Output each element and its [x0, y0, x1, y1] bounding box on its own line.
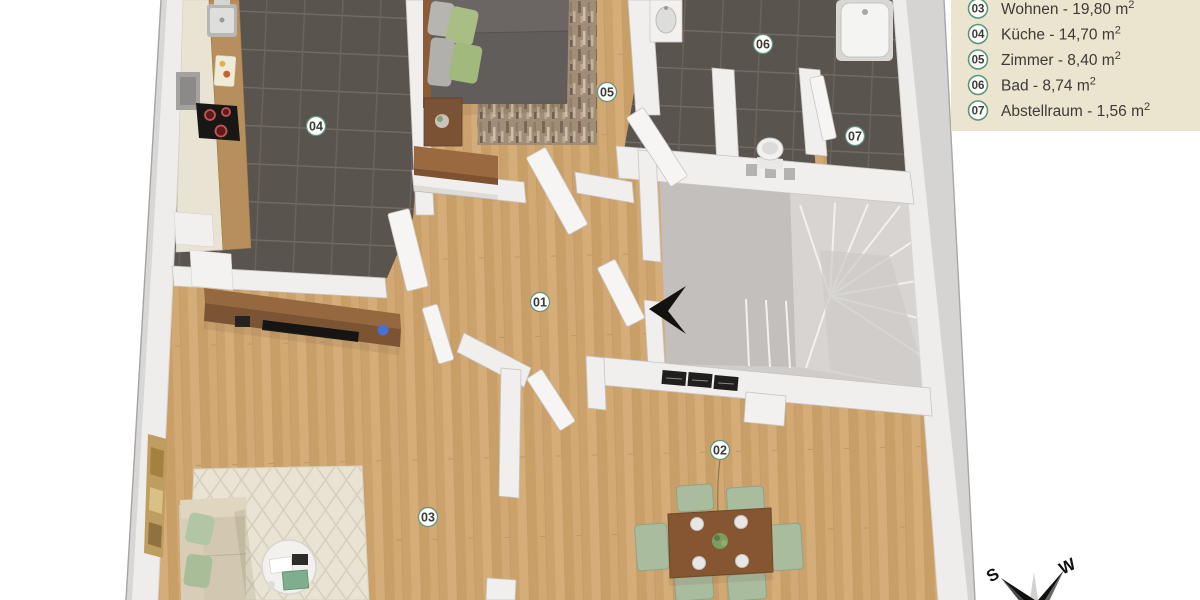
svg-text:Abstellraum - 1,56 m2: Abstellraum - 1,56 m2 — [1001, 101, 1150, 120]
svg-text:05: 05 — [972, 55, 985, 67]
svg-text:06: 06 — [972, 80, 985, 92]
svg-text:04: 04 — [972, 29, 985, 41]
svg-text:Küche - 14,70 m2: Küche - 14,70 m2 — [1001, 25, 1121, 44]
svg-text:06: 06 — [756, 38, 770, 52]
svg-text:02: 02 — [713, 444, 727, 458]
svg-text:07: 07 — [972, 106, 985, 118]
svg-text:07: 07 — [848, 130, 862, 144]
svg-text:Zimmer - 8,40 m2: Zimmer - 8,40 m2 — [1001, 50, 1121, 69]
svg-text:04: 04 — [309, 120, 323, 134]
svg-text:Wohnen - 19,80 m2: Wohnen - 19,80 m2 — [1001, 0, 1134, 18]
svg-text:Bad - 8,74 m2: Bad - 8,74 m2 — [1001, 76, 1096, 95]
svg-text:03: 03 — [421, 511, 435, 525]
svg-text:01: 01 — [533, 296, 547, 310]
svg-text:05: 05 — [600, 86, 614, 100]
svg-text:03: 03 — [972, 4, 985, 16]
